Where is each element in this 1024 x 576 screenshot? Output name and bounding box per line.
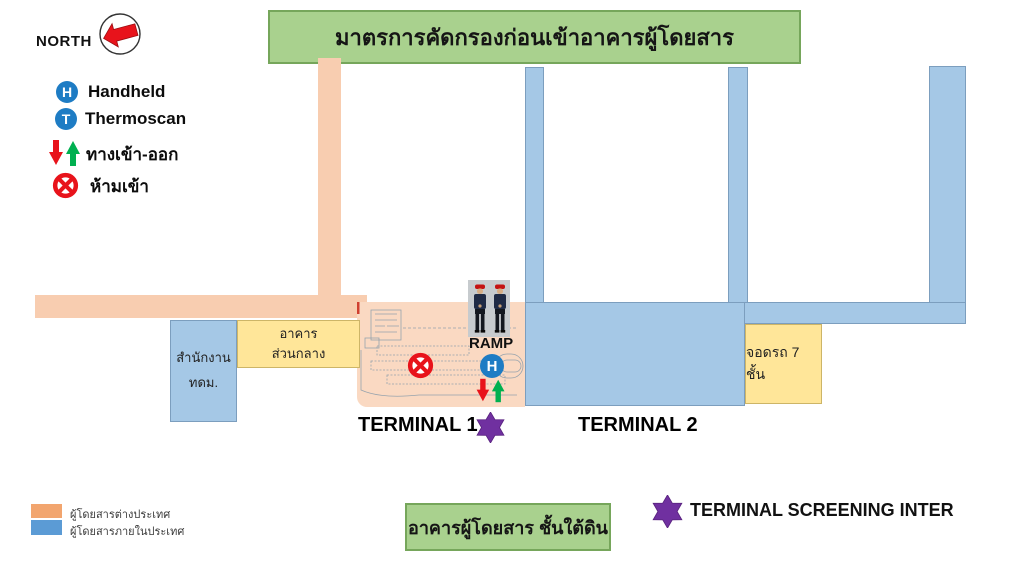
map-entry-exit-arrows-icon xyxy=(476,377,506,404)
security-guards-photo xyxy=(468,280,510,337)
map-screening-star-icon xyxy=(475,412,506,443)
terminal2-pier-right xyxy=(929,66,966,324)
title-banner: มาตรการคัดกรองก่อนเข้าอาคารผู้โดยสาร xyxy=(268,10,801,64)
road-vertical-international xyxy=(318,58,341,302)
handheld-badge-icon: H xyxy=(56,81,78,103)
ramp-label: RAMP xyxy=(469,335,513,352)
terminal2-main-hall xyxy=(525,302,745,406)
office-label-line1: สำนักงาน xyxy=(176,346,231,371)
underground-banner: อาคารผู้โดยสาร ชั้นใต้ดิน xyxy=(405,503,611,551)
legend-swatch-domestic xyxy=(31,520,62,535)
office-label-line2: ทดม. xyxy=(189,371,218,396)
terminal2-pier-middle xyxy=(728,67,748,305)
north-arrow-icon xyxy=(98,12,142,56)
central-label-line2: ส่วนกลาง xyxy=(272,344,326,364)
terminal2-label: TERMINAL 2 xyxy=(578,414,698,437)
office-building: สำนักงาน ทดม. xyxy=(170,320,237,422)
map-no-entry-icon xyxy=(407,352,434,379)
terminal2-connector xyxy=(744,302,966,324)
screening-inter-label: TERMINAL SCREENING INTER xyxy=(690,500,954,521)
central-building: อาคาร ส่วนกลาง xyxy=(237,320,360,368)
terminal2-pier-left xyxy=(525,67,544,305)
central-label-line1: อาคาร xyxy=(279,324,317,344)
legend-thermoscan-label: Thermoscan xyxy=(85,109,186,129)
legend-entry-exit-label: ทางเข้า-ออก xyxy=(86,141,178,168)
screening-map-diagram: มาตรการคัดกรองก่อนเข้าอาคารผู้โดยสาร NOR… xyxy=(0,0,1024,576)
parking-building: จอดรถ 7 ชั้น xyxy=(745,324,822,404)
map-handheld-badge-icon: H xyxy=(480,354,504,378)
road-horizontal-international xyxy=(35,295,367,318)
parking-label: จอดรถ 7 ชั้น xyxy=(746,342,821,385)
title-banner-text: มาตรการคัดกรองก่อนเข้าอาคารผู้โดยสาร xyxy=(335,20,734,55)
legend-swatch-international xyxy=(31,504,62,518)
terminal1-label: TERMINAL 1 xyxy=(358,414,478,437)
entry-exit-arrows-icon xyxy=(49,138,81,168)
legend-handheld-label: Handheld xyxy=(88,82,165,102)
handheld-glyph: H xyxy=(62,84,72,100)
screening-star-icon xyxy=(651,495,684,528)
north-label: NORTH xyxy=(36,33,92,50)
legend-no-entry-label: ห้ามเข้า xyxy=(90,173,149,200)
map-handheld-glyph: H xyxy=(487,358,498,375)
no-entry-icon xyxy=(52,172,79,199)
legend-international-label: ผู้โดยสารต่างประเทศ xyxy=(70,505,170,523)
thermoscan-badge-icon: T xyxy=(55,108,77,130)
thermoscan-glyph: T xyxy=(62,111,71,127)
legend-domestic-label: ผู้โดยสารภายในประเทศ xyxy=(70,522,184,540)
underground-banner-text: อาคารผู้โดยสาร ชั้นใต้ดิน xyxy=(408,513,608,542)
